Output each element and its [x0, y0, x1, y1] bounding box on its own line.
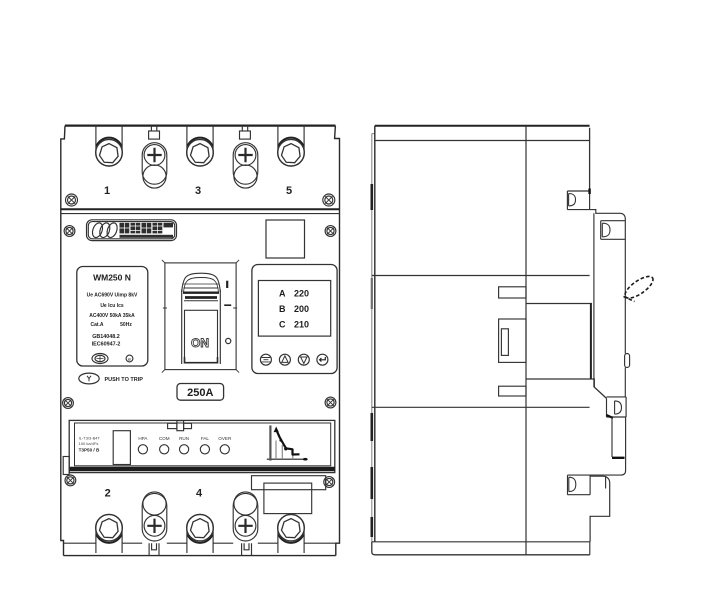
- svg-text:IEC60947-2: IEC60947-2: [92, 342, 121, 348]
- svg-text:5: 5: [286, 185, 292, 197]
- svg-text:C: C: [279, 320, 286, 330]
- svg-text:100 ka/4Fs: 100 ka/4Fs: [79, 441, 99, 446]
- svg-text:1: 1: [104, 185, 110, 197]
- svg-text:OVER: OVER: [218, 436, 232, 441]
- svg-text:e: e: [128, 357, 131, 363]
- svg-text:WM250 N: WM250 N: [93, 273, 131, 283]
- svg-text:B: B: [279, 304, 286, 314]
- svg-text:250A: 250A: [187, 387, 213, 399]
- svg-text:A: A: [279, 289, 286, 299]
- svg-text:AC400V 50kA 35kA: AC400V 50kA 35kA: [89, 313, 135, 319]
- svg-text:4: 4: [196, 488, 203, 500]
- svg-text:T3P50 / B: T3P50 / B: [79, 448, 100, 453]
- svg-text:Ue AC690V Uimp 8kV: Ue AC690V Uimp 8kV: [87, 293, 138, 299]
- svg-text:220: 220: [294, 289, 309, 299]
- svg-text:200: 200: [294, 304, 309, 314]
- svg-text:HPA: HPA: [138, 436, 148, 441]
- svg-text:FAL: FAL: [201, 436, 210, 441]
- svg-text:GB14048.2: GB14048.2: [92, 334, 120, 340]
- svg-text:RUN: RUN: [179, 436, 189, 441]
- svg-text:Cat.A: Cat.A: [90, 322, 103, 328]
- svg-text:2: 2: [105, 488, 111, 500]
- svg-text:Ue Icu Ics: Ue Icu Ics: [100, 303, 124, 309]
- svg-text:IL-T3/3-B4T: IL-T3/3-B4T: [79, 436, 101, 441]
- svg-text:210: 210: [294, 320, 309, 330]
- svg-text:COM: COM: [159, 436, 170, 441]
- svg-text:3: 3: [195, 185, 201, 197]
- svg-text:50Hz: 50Hz: [120, 322, 132, 328]
- svg-text:PUSH TO TRIP: PUSH TO TRIP: [105, 377, 144, 383]
- svg-text:ON: ON: [191, 336, 209, 350]
